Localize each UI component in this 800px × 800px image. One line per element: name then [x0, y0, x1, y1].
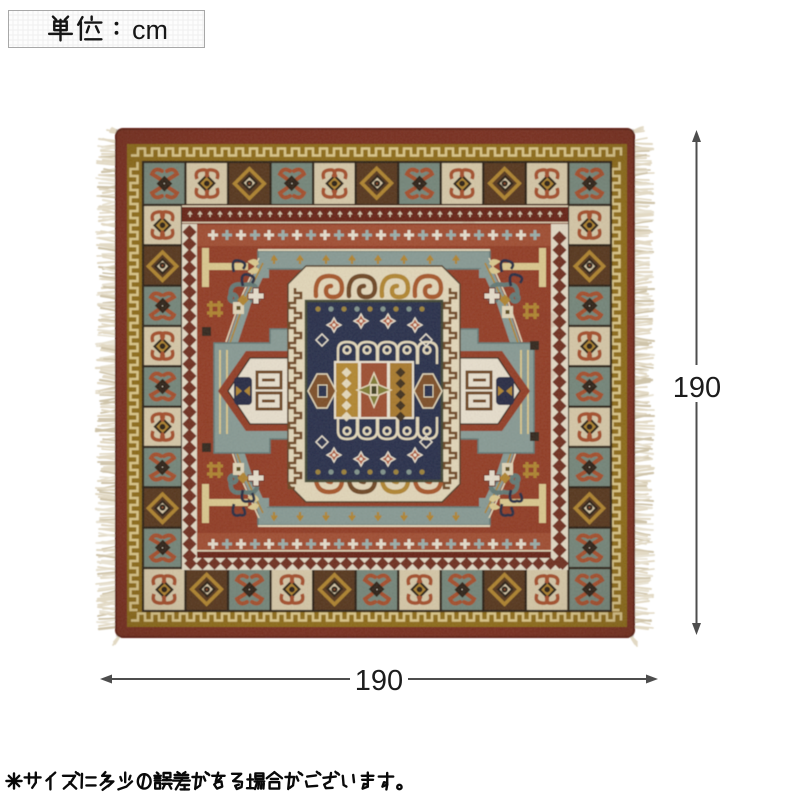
- svg-text:190: 190: [355, 665, 403, 697]
- svg-text:cm: cm: [132, 15, 168, 45]
- svg-text:190: 190: [673, 372, 721, 404]
